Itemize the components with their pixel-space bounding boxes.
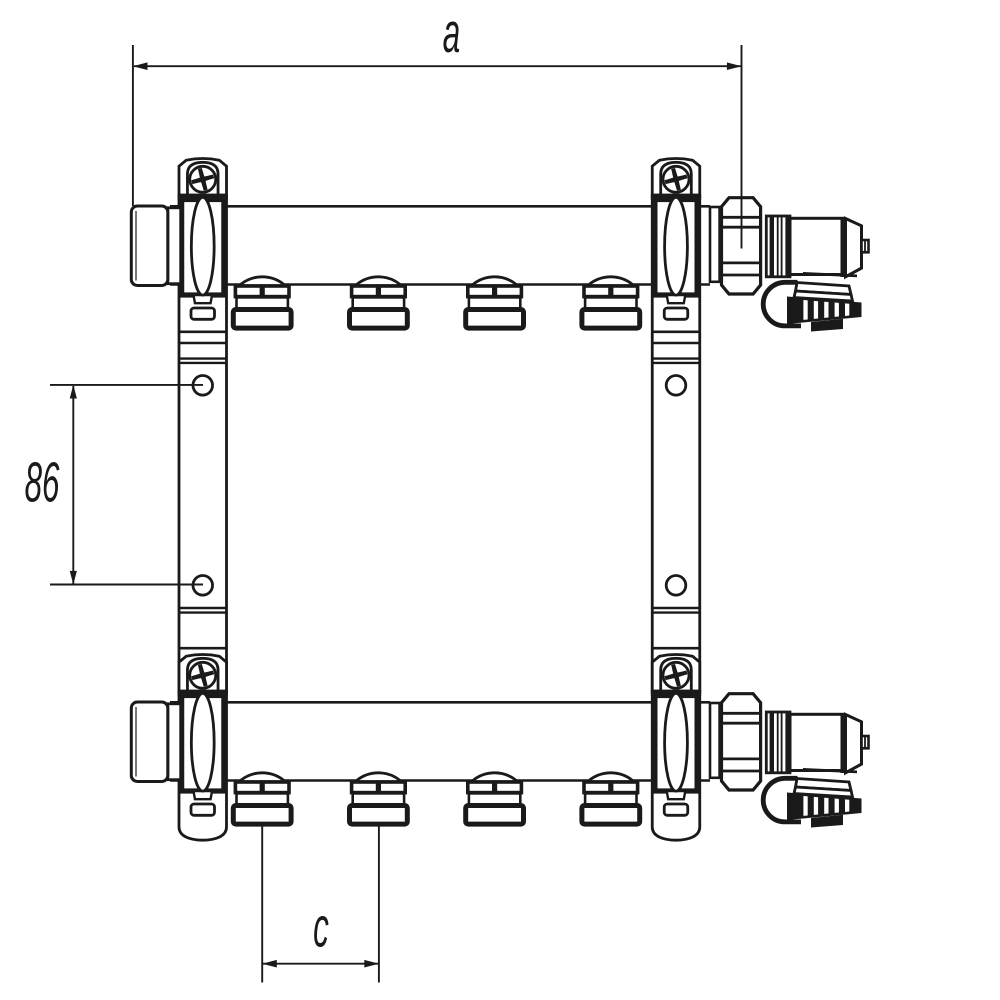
svg-text:c: c: [313, 894, 329, 958]
svg-text:86: 86: [25, 450, 60, 514]
svg-text:a: a: [443, 0, 460, 64]
